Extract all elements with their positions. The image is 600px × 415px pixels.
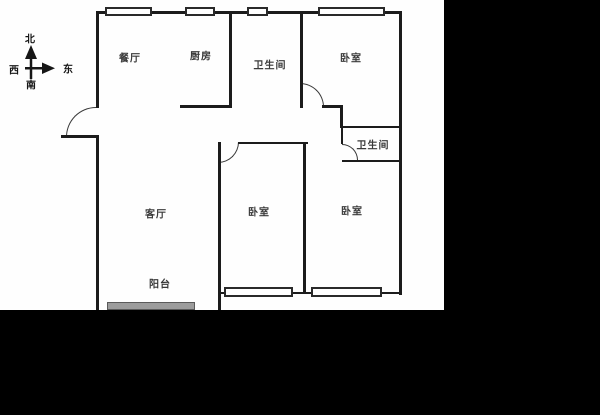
wall <box>96 135 99 310</box>
wall <box>399 11 402 295</box>
wall <box>340 105 343 128</box>
door-swing-arc <box>218 142 239 163</box>
wall <box>300 11 303 108</box>
room-label-bedroom-mid: 卧室 <box>248 204 270 219</box>
window <box>247 7 268 16</box>
room-label-living: 客厅 <box>145 206 167 221</box>
plan-area: 北 南 西 东 餐厅厨房卫生间卧室客厅卧室卧室卫生间阳台 <box>0 0 444 310</box>
room-label-bathroom-2: 卫生间 <box>357 137 390 152</box>
window <box>107 302 195 310</box>
compass-south-label: 南 <box>26 77 36 92</box>
wall <box>303 142 306 294</box>
room-label-bedroom-east: 卧室 <box>341 203 363 218</box>
wall <box>342 160 402 162</box>
wall <box>341 126 343 144</box>
wall <box>180 105 232 108</box>
wall <box>229 11 232 108</box>
wall <box>96 11 99 108</box>
window <box>311 287 382 297</box>
room-label-dining: 餐厅 <box>119 50 141 65</box>
wall <box>218 142 221 310</box>
room-label-bedroom-north: 卧室 <box>340 50 362 65</box>
door-swing-arc <box>66 107 96 137</box>
compass-north-label: 北 <box>25 31 35 46</box>
window <box>318 7 385 16</box>
wall <box>322 105 342 108</box>
room-label-kitchen: 厨房 <box>190 48 212 63</box>
wall <box>238 142 308 144</box>
compass-west-label: 西 <box>9 62 19 77</box>
window <box>185 7 215 16</box>
room-label-balcony: 阳台 <box>149 276 171 291</box>
room-label-bathroom-1: 卫生间 <box>254 57 287 72</box>
compass-east-label: 东 <box>63 61 73 76</box>
window <box>105 7 152 16</box>
compass-rose: 北 南 西 东 <box>0 25 85 95</box>
wall <box>340 126 402 128</box>
door-swing-arc <box>300 83 324 107</box>
wall <box>61 135 97 138</box>
window <box>224 287 293 297</box>
floor-plan-canvas: 北 南 西 东 餐厅厨房卫生间卧室客厅卧室卧室卫生间阳台 <box>0 0 600 415</box>
